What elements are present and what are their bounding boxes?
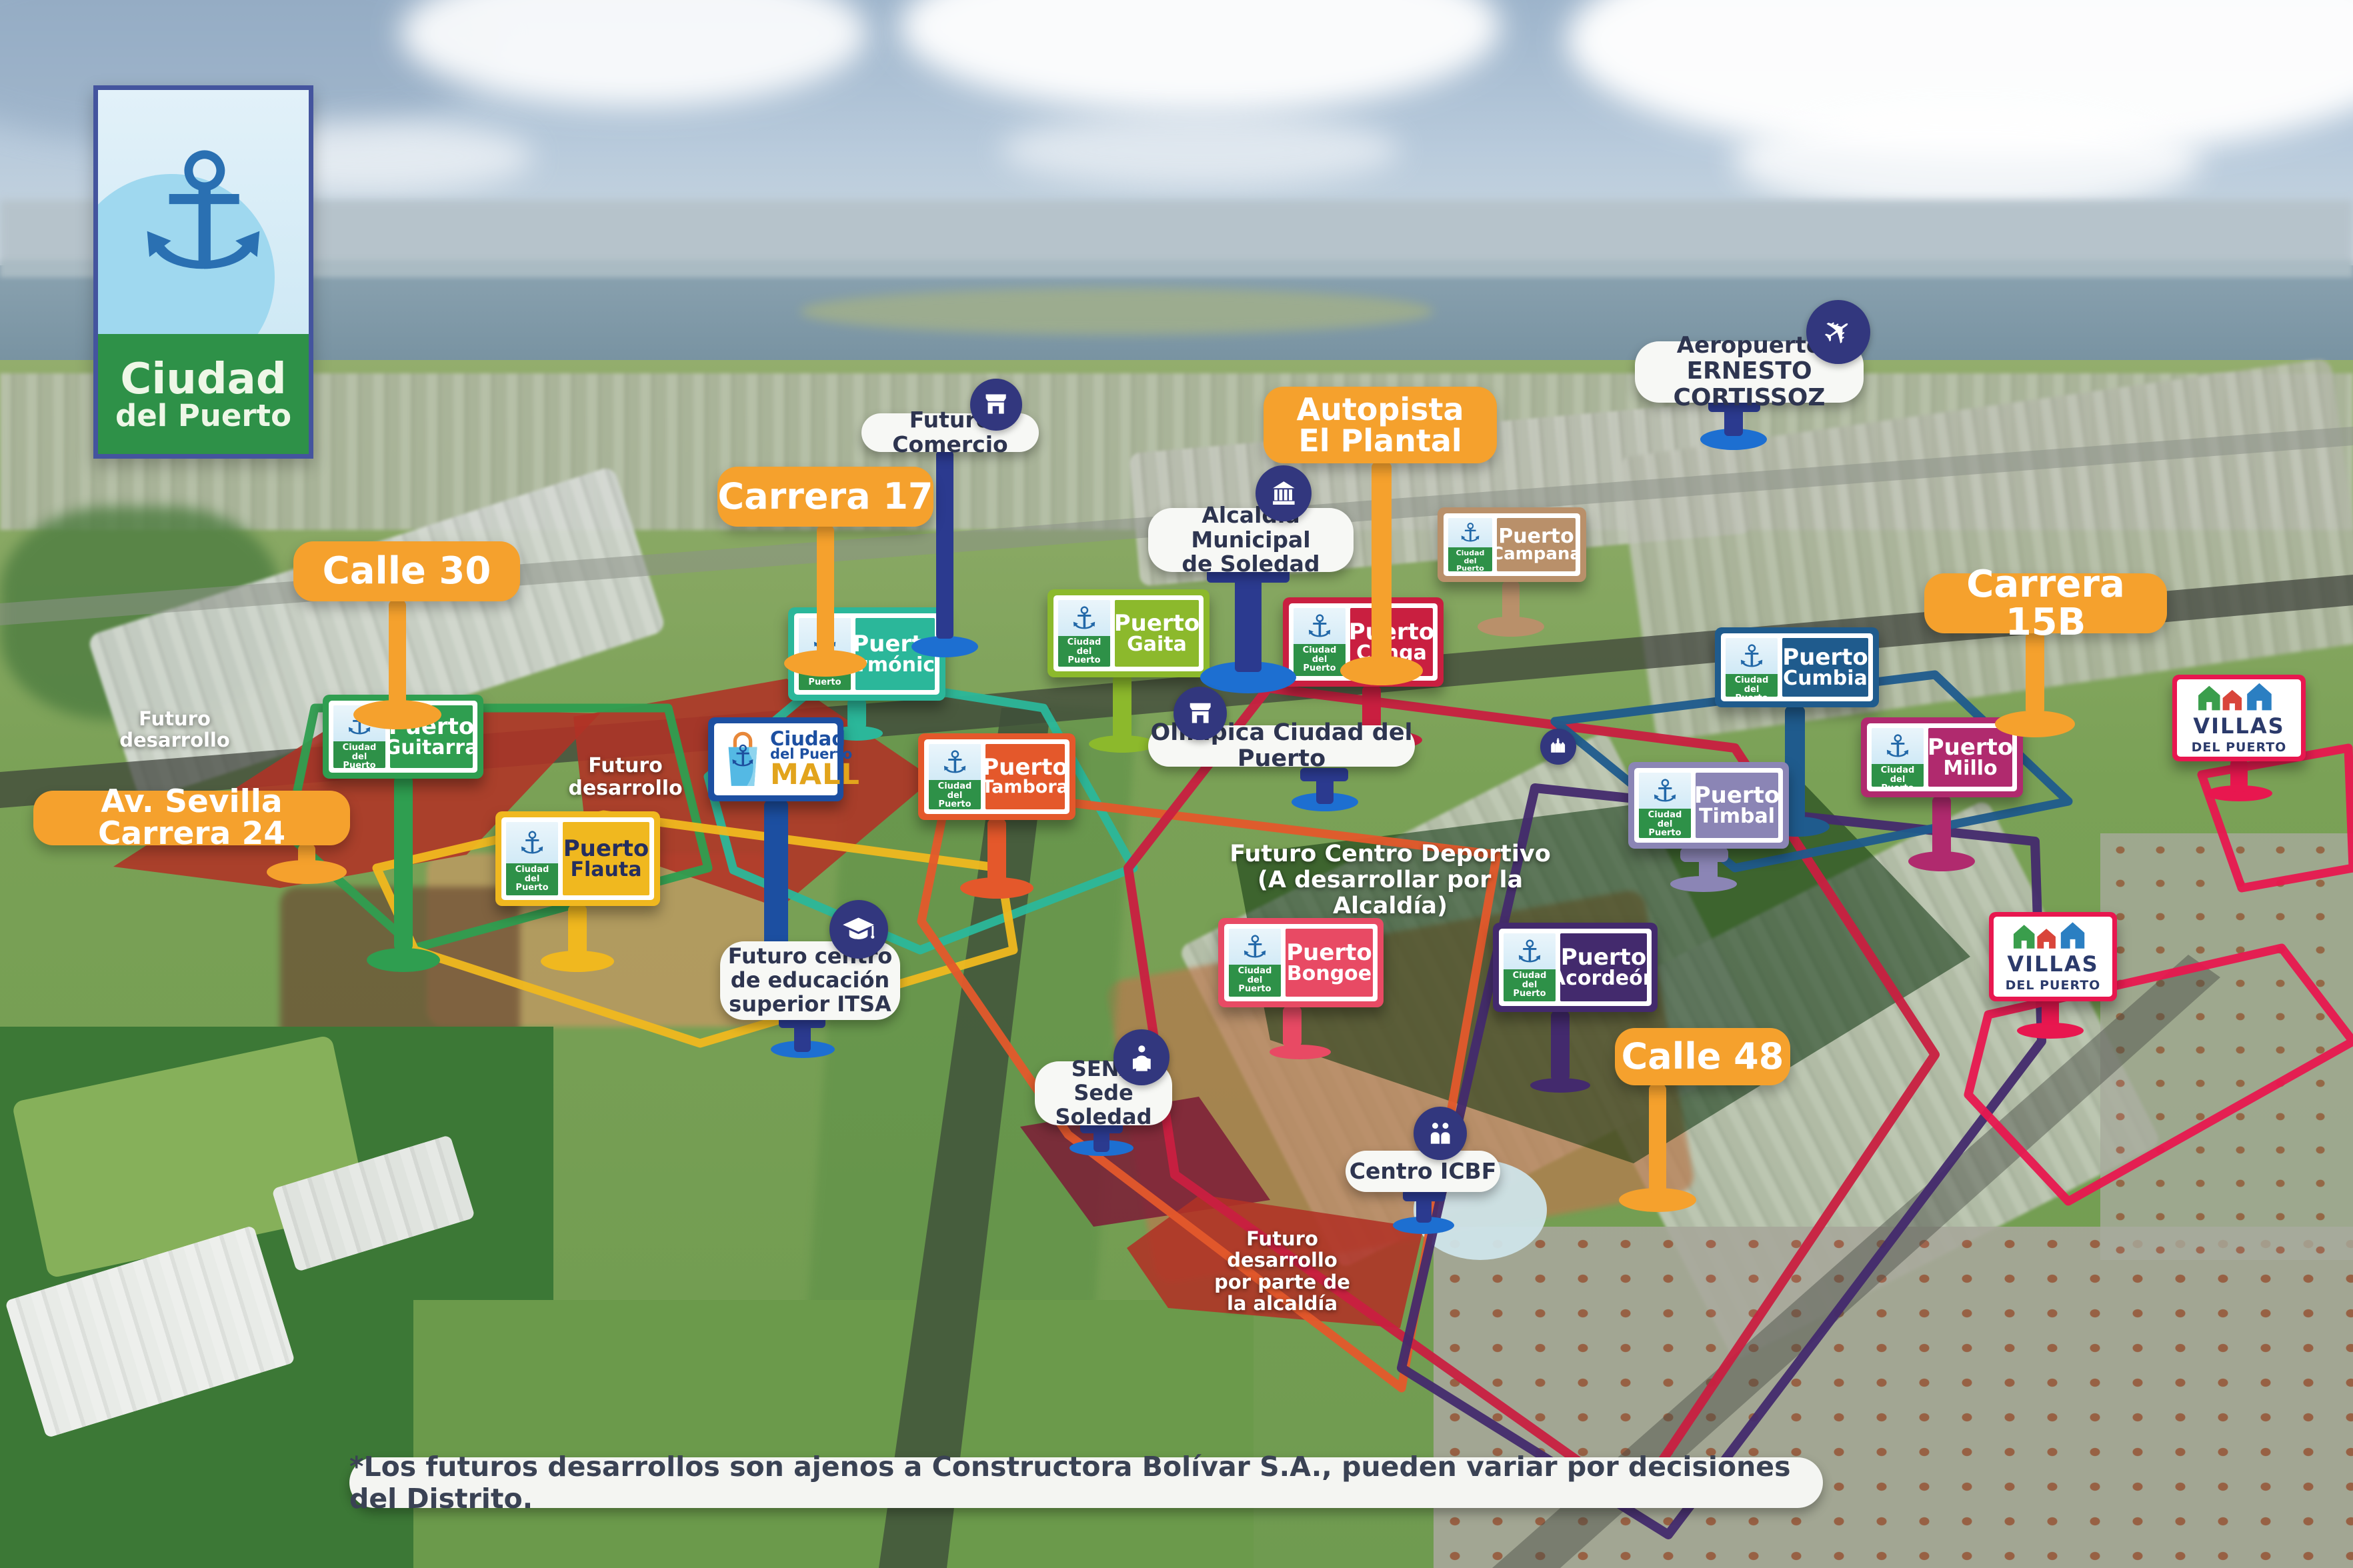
poi-pin <box>1416 1189 1432 1223</box>
sign-title: Puerto <box>1115 613 1199 635</box>
mall-title: MALL <box>770 761 860 789</box>
street-pin-base <box>1995 711 2075 737</box>
sign-ciudad-del-puerto-mall: ⚓ Ciudad del Puerto MALL <box>708 717 843 801</box>
ground-label-futuro-desarrollo-alcaldia: Futuro desarrollopor parte dela alcaldía <box>1196 1228 1369 1315</box>
villas-title: VILLAS <box>2193 713 2284 739</box>
reader-icon <box>1113 1029 1169 1085</box>
sign-puerto-cumbia: ⚓ Ciudaddel Puerto Puerto Cumbia <box>1715 627 1879 707</box>
aerial-masterplan-map: Futurodesarrollo Futurodesarrollo Futuro… <box>0 0 2353 1568</box>
ciudad-del-puerto-logo-tile: ⚓ Ciudaddel Puerto <box>1872 728 1924 787</box>
anchor-icon: ⚓ <box>1294 608 1346 644</box>
poi-pin <box>794 1015 811 1052</box>
sign-title: Puerto <box>1286 942 1372 964</box>
ground-label-futuro-desarrollo-centro: Futurodesarrollo <box>559 755 692 799</box>
store-icon <box>970 379 1022 431</box>
boundary-villas-1 <box>2202 748 2353 888</box>
poi-pin <box>1235 567 1262 672</box>
sign-pole <box>2230 759 2248 792</box>
street-label-autopista-el-plantal: Autopista El Plantal <box>1264 387 1497 463</box>
ciudad-del-puerto-logo-tile: ⚓ Ciudaddel Puerto <box>1639 773 1691 838</box>
mall-brand-line1: Ciudad <box>770 730 845 749</box>
sign-subtitle: Campana <box>1497 546 1576 563</box>
sign-pole <box>568 905 587 957</box>
street-pin <box>389 600 406 705</box>
sign-subtitle: Bongoe <box>1287 964 1372 983</box>
ciudad-del-puerto-logo-tile: ⚓ Ciudaddel Puerto <box>506 822 558 895</box>
sign-pole <box>2042 999 2059 1029</box>
sign-pole <box>1502 581 1520 622</box>
sign-title: Puerto <box>1350 621 1433 643</box>
disclaimer-text: *Los futuros desarrollos son ajenos a Co… <box>349 1451 1823 1515</box>
sign-pole <box>1113 675 1131 740</box>
sign-title: Puerto <box>1782 647 1868 669</box>
ciudad-del-puerto-logo-tile: ⚓ Ciudaddel Puerto <box>1294 608 1346 676</box>
anchor-icon: ⚓ <box>929 744 981 780</box>
sign-title: Puerto <box>1928 737 2012 759</box>
store-icon <box>1173 687 1227 740</box>
street-pin <box>1649 1084 1666 1193</box>
plane-icon: ✈ <box>1806 300 1870 364</box>
sign-title: Puerto <box>985 757 1065 779</box>
anchor-icon: ⚓ <box>98 90 309 334</box>
sign-puerto-tambora: ⚓ Ciudaddel Puerto Puerto Tambora <box>918 733 1075 820</box>
anchor-icon: ⚓ <box>1229 929 1281 965</box>
sign-title: Puerto <box>1561 947 1647 969</box>
poi-pin <box>1316 768 1334 804</box>
sign-puerto-flauta: ⚓ Ciudaddel Puerto Puerto Flauta <box>495 811 660 906</box>
sign-puerto-acordeon: ⚓ Ciudaddel Puerto Puerto Acordeón <box>1493 923 1658 1012</box>
sign-subtitle: Flauta <box>571 860 642 879</box>
anchor-icon: ⚓ <box>1639 773 1691 809</box>
sign-subtitle: Millo <box>1943 759 1997 778</box>
street-pin <box>1372 462 1392 661</box>
sign-pole <box>1699 849 1718 886</box>
sign-pole <box>1551 1011 1570 1081</box>
villas-title: VILLAS <box>2007 951 2098 977</box>
poi-centro-icbf: Centro ICBF <box>1346 1151 1500 1192</box>
logo-subtitle: del Puerto <box>115 401 291 431</box>
sign-pole <box>987 819 1006 883</box>
sign-subtitle: Gaita <box>1127 635 1187 654</box>
shopping-bag-icon: ⚓ <box>718 729 767 790</box>
sign-subtitle: Guitarra <box>390 738 473 757</box>
sign-title: Puerto <box>563 838 649 860</box>
houses-icon <box>2196 681 2282 712</box>
logo-title: Ciudad <box>120 358 286 401</box>
street-pin <box>2026 632 2044 715</box>
sign-subtitle: Tambora <box>985 779 1065 796</box>
ciudad-del-puerto-logo: ⚓ Ciudad del Puerto <box>93 85 313 459</box>
government-building-icon <box>1256 465 1312 521</box>
sign-pole <box>847 698 866 730</box>
sign-villas-del-puerto-1: VILLAS DEL PUERTO <box>2172 675 2306 761</box>
street-label-calle-48: Calle 48 <box>1615 1028 1790 1085</box>
sign-base <box>1270 1045 1331 1059</box>
street-label-carrera-15b: Carrera 15B <box>1924 573 2167 633</box>
street-pin <box>817 525 834 657</box>
poi-pin-base <box>911 636 978 657</box>
anchor-icon: ⚓ <box>1058 600 1110 636</box>
sign-subtitle: Acordeón <box>1560 969 1647 988</box>
anchor-icon: ⚓ <box>1504 933 1556 969</box>
anchor-icon: ⚓ <box>718 739 767 773</box>
ciudad-del-puerto-logo-tile: ⚓ Ciudaddel Puerto <box>1726 638 1778 697</box>
street-label-carrera-17: Carrera 17 <box>717 467 933 527</box>
sign-puerto-bongoe: ⚓ Ciudaddel Puerto Puerto Bongoe <box>1218 918 1384 1007</box>
ground-label-futuro-desarrollo-oeste: Futurodesarrollo <box>115 708 235 751</box>
sign-puerto-campana: ⚓ Ciudaddel Puerto Puerto Campana <box>1438 507 1586 582</box>
ciudad-del-puerto-logo-tile: ⚓ Ciudaddel Puerto <box>929 744 981 809</box>
ground-label-futuro-centro-deportivo: Futuro Centro Deportivo(A desarrollar po… <box>1224 841 1557 920</box>
sign-title: Puerto <box>1696 785 1778 807</box>
street-label-av-sevilla-carrera-24: Av. Sevilla Carrera 24 <box>33 791 350 845</box>
sign-pole <box>394 776 413 951</box>
villas-subtitle: DEL PUERTO <box>2192 740 2287 755</box>
graduation-cap-icon <box>829 900 888 959</box>
anchor-icon: ⚓ <box>1448 518 1492 547</box>
sign-title: Puerto <box>1498 527 1574 546</box>
ciudad-del-puerto-logo-tile: ⚓ Ciudaddel Puerto <box>1448 518 1492 571</box>
sign-pole <box>1283 1006 1302 1047</box>
sign-puerto-timbal: ⚓ Ciudaddel Puerto Puerto Timbal <box>1628 762 1789 849</box>
ciudad-del-puerto-logo-tile: ⚓ Ciudaddel Puerto <box>1229 929 1281 997</box>
poi-pin <box>936 451 953 639</box>
poi-alcaldia-municipal: Alcaldía Municipal de Soledad <box>1148 508 1354 572</box>
sign-puerto-gaita: ⚓ Ciudaddel Puerto Puerto Gaita <box>1047 589 1210 677</box>
ciudad-del-puerto-logo-tile: ⚓ Ciudaddel Puerto <box>1504 933 1556 1001</box>
sign-subtitle: Armónica <box>855 655 935 675</box>
sign-subtitle: Cumbia <box>1783 669 1868 688</box>
disclaimer-bar: *Los futuros desarrollos son ajenos a Co… <box>349 1457 1823 1508</box>
sign-pole <box>1932 796 1951 857</box>
anchor-icon: ⚓ <box>1872 728 1924 764</box>
family-icon <box>1414 1107 1467 1160</box>
church-icon <box>1540 729 1576 765</box>
sign-base <box>367 948 440 972</box>
villas-subtitle: DEL PUERTO <box>2006 978 2101 993</box>
street-label-calle-30: Calle 30 <box>293 541 520 601</box>
sign-villas-del-puerto-2: VILLAS DEL PUERTO <box>1989 912 2117 1001</box>
anchor-icon: ⚓ <box>1726 638 1778 674</box>
houses-icon <box>2011 921 2095 950</box>
sign-subtitle: Timbal <box>1699 807 1775 826</box>
anchor-icon: ⚓ <box>506 822 558 863</box>
ciudad-del-puerto-logo-tile: ⚓ Ciudaddel Puerto <box>1058 600 1110 667</box>
